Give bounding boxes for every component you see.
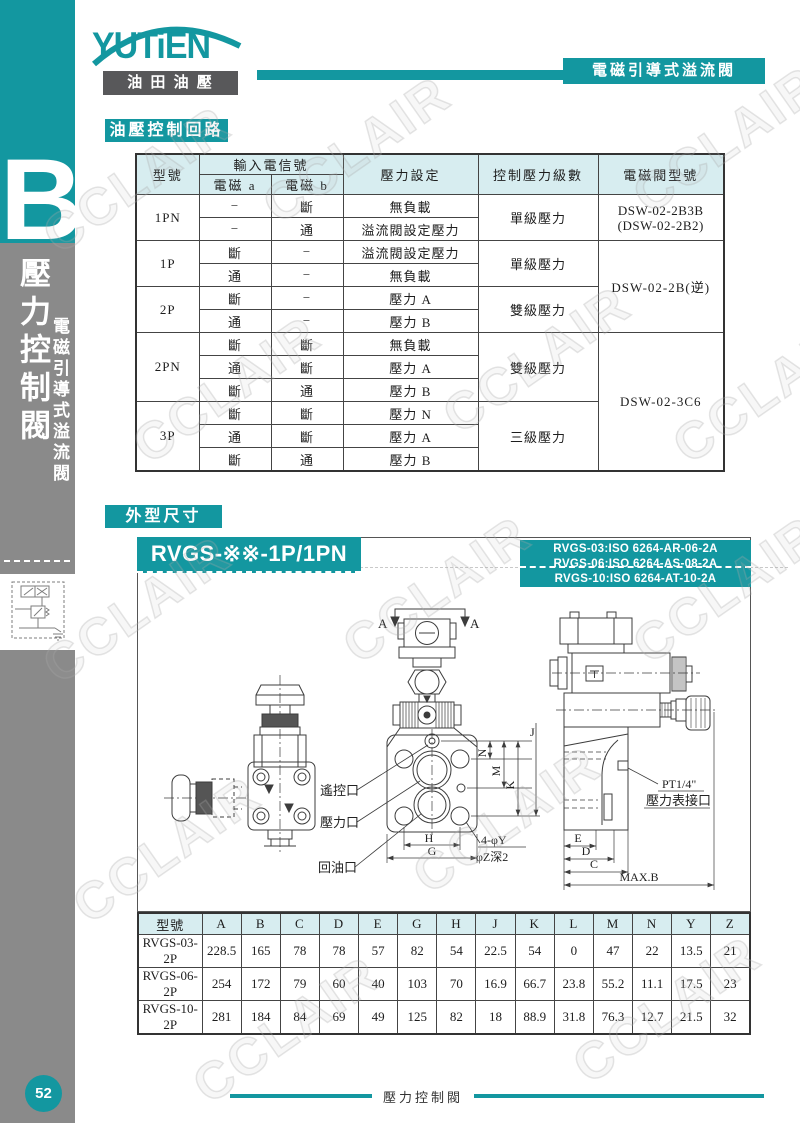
iso-code-line: RVGS-06:ISO 6264-AS-08-2A xyxy=(520,557,751,572)
circuit-cell: 無負載 xyxy=(343,264,478,287)
section-label-a: A xyxy=(378,616,388,631)
dims-cell: 82 xyxy=(398,935,437,968)
dims-cell: 17.5 xyxy=(672,968,711,1001)
dims-header: A xyxy=(202,913,241,935)
dim-label-h: H xyxy=(425,831,434,845)
dim-label-j: J xyxy=(530,725,535,739)
valve-side-view-drawing: PT1/4" 壓力表接口 E D C MAX.B xyxy=(548,600,758,900)
circuit-section-title: 油壓控制回路 xyxy=(105,119,228,142)
circuit-cell: 通 xyxy=(199,264,271,287)
hydraulic-circuit-icon xyxy=(9,576,69,648)
dims-header: Y xyxy=(672,913,711,935)
valve-model-cell: DSW-02-3C6 xyxy=(598,333,724,472)
circuit-cell: − xyxy=(271,241,343,264)
dims-header: 型號 xyxy=(138,913,202,935)
circuit-table: 型號 輸入電信號 壓力設定 控制壓力級數 電磁閥型號 電磁 a 電磁 b 1PN… xyxy=(135,153,725,472)
dim-label-c: C xyxy=(590,857,598,871)
dims-cell: 84 xyxy=(280,1001,319,1035)
iso-codes-box: RVGS-03:ISO 6264-AR-06-2A RVGS-06:ISO 62… xyxy=(520,540,751,587)
dims-cell: 55.2 xyxy=(593,968,632,1001)
col-header-input: 輸入電信號 xyxy=(199,154,343,175)
dims-header: K xyxy=(515,913,554,935)
hole-depth-label: φZ深2 xyxy=(476,850,508,864)
page-number-badge: 52 xyxy=(25,1075,62,1112)
circuit-cell: 斷 xyxy=(199,402,271,425)
dims-header: C xyxy=(280,913,319,935)
dims-header: J xyxy=(476,913,515,935)
model-cell: 1PN xyxy=(136,195,199,241)
pressure-port-label: 壓力口 xyxy=(320,815,359,830)
dims-cell: 13.5 xyxy=(672,935,711,968)
dims-cell: 281 xyxy=(202,1001,241,1035)
table-header-row: 型號 A B C D E G H J K L M N Y Z xyxy=(138,913,750,935)
circuit-cell: 斷 xyxy=(199,379,271,402)
dims-cell: 22.5 xyxy=(476,935,515,968)
col-header-pressure: 壓力設定 xyxy=(343,154,478,195)
model-cell: 1P xyxy=(136,241,199,287)
dims-cell: 184 xyxy=(241,1001,280,1035)
dims-cell: 125 xyxy=(398,1001,437,1035)
circuit-cell: 通 xyxy=(271,379,343,402)
level-cell: 三級壓力 xyxy=(478,402,598,472)
dims-header: E xyxy=(359,913,398,935)
col-header-level: 控制壓力級數 xyxy=(478,154,598,195)
valve-top-view-drawing: A A 遙控口 壓力口 回油口 H G N M K J 4-φY φZ深2 xyxy=(300,595,555,885)
dims-cell: 21 xyxy=(711,935,750,968)
circuit-cell: 斷 xyxy=(271,195,343,218)
table-row: RVGS-10-2P 281 184 84 69 49 125 82 18 88… xyxy=(138,1001,750,1035)
dashed-guide-line-white xyxy=(520,566,751,568)
gauge-port-label: 壓力表接口 xyxy=(646,793,711,808)
table-row: 1P 斷 − 溢流閥設定壓力 單級壓力 DSW-02-2B(逆) xyxy=(136,241,724,264)
holes-label: 4-φY xyxy=(481,833,507,847)
dim-label-d: D xyxy=(582,844,591,858)
dims-cell: 32 xyxy=(711,1001,750,1035)
section-label-a: A xyxy=(470,616,480,631)
dims-cell: RVGS-10-2P xyxy=(138,1001,202,1035)
level-cell: 單級壓力 xyxy=(478,195,598,241)
table-row: RVGS-03-2P 228.5 165 78 78 57 82 54 22.5… xyxy=(138,935,750,968)
footer-title: 壓力控制閥 xyxy=(372,1087,474,1106)
model-cell: 2PN xyxy=(136,333,199,402)
dims-cell: 76.3 xyxy=(593,1001,632,1035)
sidebar-lower-gray xyxy=(0,650,75,1123)
valve-model-cell: DSW-02-2B(逆) xyxy=(598,241,724,333)
circuit-cell: − xyxy=(199,195,271,218)
circuit-cell: 斷 xyxy=(199,333,271,356)
dims-cell: 88.9 xyxy=(515,1001,554,1035)
circuit-cell: − xyxy=(271,264,343,287)
dims-cell: 23.8 xyxy=(554,968,593,1001)
dims-header: M xyxy=(593,913,632,935)
dims-cell: 78 xyxy=(319,935,358,968)
dims-cell: 79 xyxy=(280,968,319,1001)
dims-cell: RVGS-03-2P xyxy=(138,935,202,968)
sidebar-subtitle: 電磁引導式溢流閥 xyxy=(47,317,72,485)
footer-rule-left xyxy=(230,1094,372,1098)
dim-label-g: G xyxy=(428,844,437,858)
valve-model-line: (DSW-02-2B2) xyxy=(599,218,724,233)
remote-port-label: 遙控口 xyxy=(320,783,359,798)
circuit-cell: 通 xyxy=(199,425,271,448)
dims-cell: 12.7 xyxy=(633,1001,672,1035)
level-cell: 單級壓力 xyxy=(478,241,598,287)
level-cell: 雙級壓力 xyxy=(478,287,598,333)
page-topic-title: 電磁引導式溢流閥 xyxy=(563,58,765,84)
dims-header: N xyxy=(633,913,672,935)
circuit-cell: − xyxy=(199,218,271,241)
brand-logo-chinese: 油 田 油 壓 xyxy=(103,71,238,95)
valve-model-line: DSW-02-2B3B xyxy=(599,203,724,218)
circuit-cell: 斷 xyxy=(199,287,271,310)
dims-cell: 54 xyxy=(437,935,476,968)
dimensions-section-title: 外型尺寸 xyxy=(105,505,222,528)
dims-cell: 69 xyxy=(319,1001,358,1035)
dims-cell: 57 xyxy=(359,935,398,968)
circuit-cell: 溢流閥設定壓力 xyxy=(343,241,478,264)
dims-header: G xyxy=(398,913,437,935)
dims-cell: 78 xyxy=(280,935,319,968)
table-row: 1PN − 斷 無負載 單級壓力 DSW-02-2B3B (DSW-02-2B2… xyxy=(136,195,724,218)
brand-logo: YUTiEN xyxy=(92,25,242,67)
header-accent-bar xyxy=(257,70,563,80)
dim-label-m: M xyxy=(489,765,503,776)
circuit-cell: − xyxy=(271,310,343,333)
dims-header: B xyxy=(241,913,280,935)
dims-cell: 18 xyxy=(476,1001,515,1035)
circuit-cell: 壓力 B xyxy=(343,379,478,402)
dim-label-k: K xyxy=(503,780,517,789)
circuit-cell: 通 xyxy=(199,356,271,379)
dim-label-max-b: MAX.B xyxy=(619,870,658,884)
model-cell: 2P xyxy=(136,287,199,333)
sidebar-divider xyxy=(4,560,70,562)
dims-cell: 172 xyxy=(241,968,280,1001)
dims-cell: 0 xyxy=(554,935,593,968)
dims-cell: 21.5 xyxy=(672,1001,711,1035)
dims-cell: 254 xyxy=(202,968,241,1001)
circuit-cell: 通 xyxy=(199,310,271,333)
circuit-cell: 斷 xyxy=(271,402,343,425)
model-cell: 3P xyxy=(136,402,199,472)
drawing-model-title: RVGS-※※-1P/1PN xyxy=(137,537,361,573)
circuit-cell: 通 xyxy=(271,448,343,472)
circuit-cell: 壓力 N xyxy=(343,402,478,425)
col-header-sol-b: 電磁 b xyxy=(271,175,343,195)
dims-cell: 23 xyxy=(711,968,750,1001)
col-header-model: 型號 xyxy=(136,154,199,195)
circuit-cell: 壓力 B xyxy=(343,310,478,333)
catalog-page: B 壓力控制閥 電磁引導式溢流閥 52 YUTiEN 油 田 油 壓 電磁引導式… xyxy=(0,0,800,1129)
iso-code-line: RVGS-03:ISO 6264-AR-06-2A xyxy=(520,542,751,557)
table-row: 2PN 斷 斷 無負載 雙級壓力 DSW-02-3C6 xyxy=(136,333,724,356)
circuit-cell: 斷 xyxy=(199,448,271,472)
circuit-cell: 壓力 A xyxy=(343,356,478,379)
circuit-cell: 壓力 A xyxy=(343,425,478,448)
dims-cell: 66.7 xyxy=(515,968,554,1001)
valve-model-cell: DSW-02-2B3B (DSW-02-2B2) xyxy=(598,195,724,241)
dims-cell: 49 xyxy=(359,1001,398,1035)
circuit-cell: 壓力 B xyxy=(343,448,478,472)
dims-cell: 47 xyxy=(593,935,632,968)
circuit-cell: 斷 xyxy=(271,333,343,356)
dims-cell: 228.5 xyxy=(202,935,241,968)
dims-header: H xyxy=(437,913,476,935)
footer-rule-right xyxy=(474,1094,764,1098)
circuit-cell: 壓力 A xyxy=(343,287,478,310)
circuit-cell: 無負載 xyxy=(343,195,478,218)
level-cell: 雙級壓力 xyxy=(478,333,598,402)
circuit-cell: 溢流閥設定壓力 xyxy=(343,218,478,241)
col-header-valve: 電磁閥型號 xyxy=(598,154,724,195)
dims-cell: 11.1 xyxy=(633,968,672,1001)
dim-label-e: E xyxy=(574,831,581,845)
dims-cell: 16.9 xyxy=(476,968,515,1001)
dims-cell: 54 xyxy=(515,935,554,968)
circuit-cell: 無負載 xyxy=(343,333,478,356)
dims-cell: 40 xyxy=(359,968,398,1001)
iso-code-line: RVGS-10:ISO 6264-AT-10-2A xyxy=(520,572,751,587)
dims-header: Z xyxy=(711,913,750,935)
dims-cell: 70 xyxy=(437,968,476,1001)
return-port-label: 回油口 xyxy=(318,860,357,875)
circuit-cell: − xyxy=(271,287,343,310)
dims-cell: 165 xyxy=(241,935,280,968)
dims-cell: 31.8 xyxy=(554,1001,593,1035)
dims-cell: 103 xyxy=(398,968,437,1001)
circuit-cell: 斷 xyxy=(271,356,343,379)
section-tab-letter: B xyxy=(0,153,78,247)
dims-cell: 60 xyxy=(319,968,358,1001)
gauge-size-label: PT1/4" xyxy=(662,777,696,791)
dims-header: L xyxy=(554,913,593,935)
table-row: RVGS-06-2P 254 172 79 60 40 103 70 16.9 … xyxy=(138,968,750,1001)
dims-cell: RVGS-06-2P xyxy=(138,968,202,1001)
dimensions-table: 型號 A B C D E G H J K L M N Y Z RVGS-03-2… xyxy=(137,912,751,1035)
circuit-cell: 斷 xyxy=(199,241,271,264)
circuit-cell: 通 xyxy=(271,218,343,241)
dims-cell: 22 xyxy=(633,935,672,968)
dim-label-n: N xyxy=(475,748,489,757)
col-header-sol-a: 電磁 a xyxy=(199,175,271,195)
circuit-cell: 斷 xyxy=(271,425,343,448)
dims-cell: 82 xyxy=(437,1001,476,1035)
dims-header: D xyxy=(319,913,358,935)
